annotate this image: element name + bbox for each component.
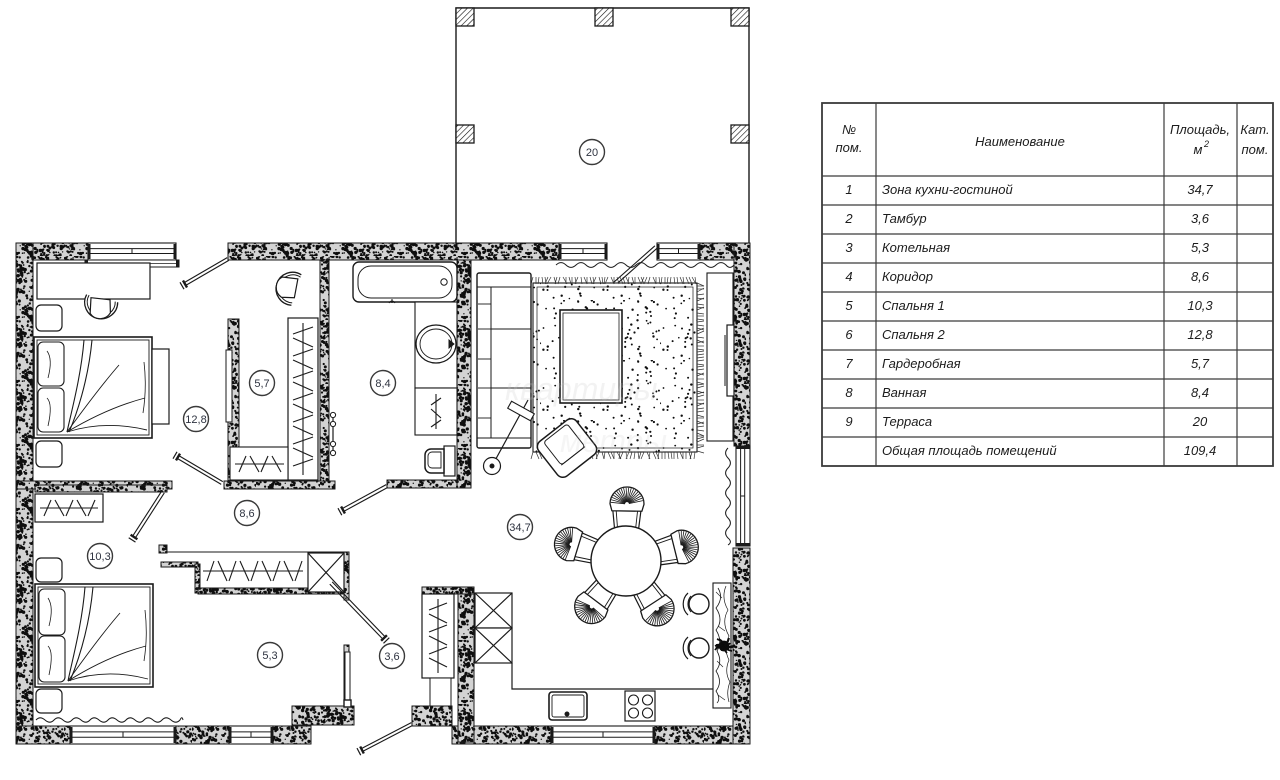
- svg-text:9: 9: [845, 414, 852, 429]
- svg-text:м: м: [1194, 142, 1203, 157]
- svg-text:34,7: 34,7: [509, 522, 530, 534]
- svg-text:8,6: 8,6: [1191, 269, 1210, 284]
- svg-text:Ванная: Ванная: [882, 385, 926, 400]
- svg-text:3,6: 3,6: [1191, 211, 1210, 226]
- svg-text:пом.: пом.: [1242, 142, 1269, 157]
- svg-text:109,4: 109,4: [1184, 443, 1217, 458]
- svg-text:6: 6: [845, 327, 853, 342]
- svg-text:10,3: 10,3: [89, 551, 110, 563]
- svg-text:10,3: 10,3: [1187, 298, 1213, 313]
- svg-text:Терраса: Терраса: [882, 414, 932, 429]
- svg-text:7: 7: [845, 356, 853, 371]
- svg-text:8,4: 8,4: [1191, 385, 1209, 400]
- svg-text:1: 1: [845, 182, 852, 197]
- svg-text:20: 20: [1192, 414, 1208, 429]
- svg-text:5,3: 5,3: [262, 650, 277, 662]
- svg-text:12,8: 12,8: [1187, 327, 1213, 342]
- svg-text:8,4: 8,4: [375, 378, 390, 390]
- svg-text:2: 2: [844, 211, 853, 226]
- svg-text:пом.: пом.: [836, 140, 863, 155]
- svg-text:3: 3: [845, 240, 853, 255]
- svg-text:Спальня 1: Спальня 1: [882, 298, 945, 313]
- svg-text:Гардеробная: Гардеробная: [882, 356, 961, 371]
- svg-text:8: 8: [845, 385, 853, 400]
- svg-text:Кат.: Кат.: [1240, 122, 1269, 137]
- svg-text:5,3: 5,3: [1191, 240, 1210, 255]
- svg-text:Общая площадь помещений: Общая площадь помещений: [882, 443, 1057, 458]
- svg-text:Тамбур: Тамбур: [882, 211, 927, 226]
- svg-text:3,6: 3,6: [384, 651, 399, 663]
- svg-text:8,6: 8,6: [239, 508, 254, 520]
- svg-text:Котельная: Котельная: [882, 240, 950, 255]
- svg-text:Зона кухни-гостиной: Зона кухни-гостиной: [882, 182, 1013, 197]
- svg-text:Площадь,: Площадь,: [1170, 122, 1230, 137]
- svg-text:№: №: [842, 122, 856, 137]
- svg-text:квартиры: квартиры: [505, 371, 658, 407]
- svg-text:5: 5: [845, 298, 853, 313]
- svg-text:Наименование: Наименование: [975, 134, 1065, 149]
- svg-text:5,7: 5,7: [1191, 356, 1210, 371]
- svg-text:Спальня 2: Спальня 2: [882, 327, 946, 342]
- svg-text:34,7: 34,7: [1187, 182, 1213, 197]
- svg-text:5,7: 5,7: [254, 378, 269, 390]
- svg-text:метры: метры: [560, 423, 667, 459]
- svg-text:20: 20: [586, 147, 598, 159]
- svg-text:2: 2: [1203, 139, 1209, 149]
- svg-text:4: 4: [845, 269, 852, 284]
- svg-text:Коридор: Коридор: [882, 269, 933, 284]
- svg-text:12,8: 12,8: [185, 414, 206, 426]
